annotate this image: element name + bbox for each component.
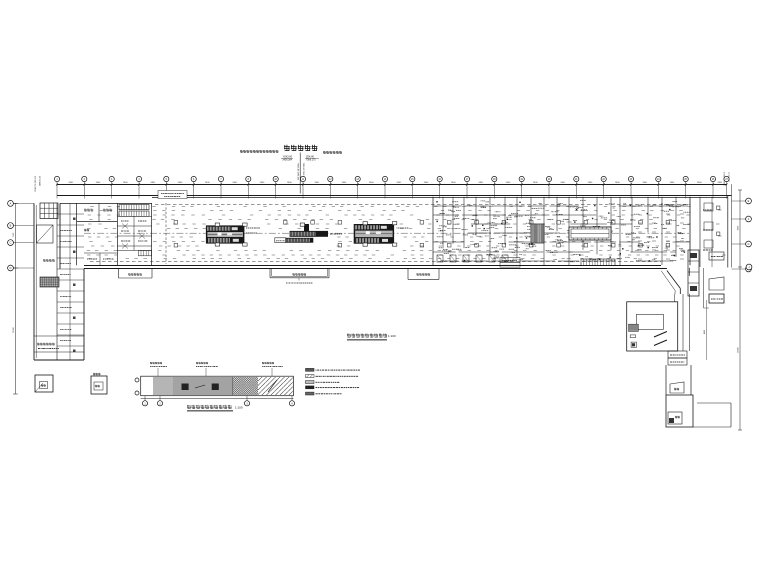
svg-text:1:100: 1:100 [235,406,243,410]
svg-text:YDK2-76 543.215: YDK2-76 543.215 [35,175,37,192]
svg-text:ZDK-80: ZDK-80 [306,157,315,159]
svg-text:G: G [748,243,750,246]
svg-text:1:100: 1:100 [388,334,396,338]
svg-text:C: C [10,242,12,245]
svg-text:21500: 21500 [13,326,15,332]
svg-text:7100: 7100 [13,232,15,237]
svg-text:D: D [10,267,12,270]
svg-text:24700: 24700 [738,346,740,352]
svg-text:YDK2-80 3456.384: YDK2-80 3456.384 [297,163,299,181]
svg-text:3456.384: 3456.384 [282,160,292,162]
svg-text:7086.175: 7086.175 [306,160,316,162]
svg-text:YDK2-80: YDK2-80 [283,157,293,159]
svg-text:4950: 4950 [704,330,706,334]
svg-text:AEK32+23: AEK32+23 [39,175,42,186]
